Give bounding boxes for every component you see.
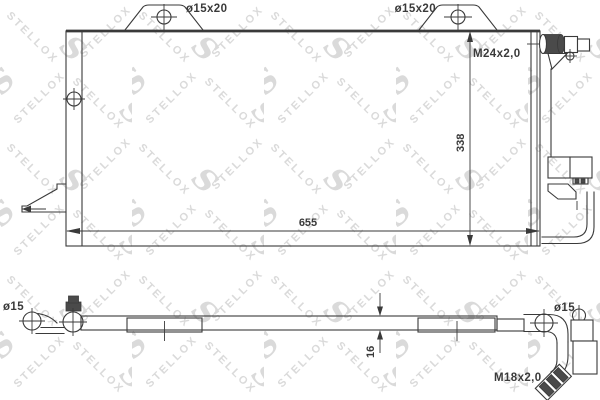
width-dimension-label: 655 [299,217,317,229]
watermark-background [0,0,600,400]
bracket-left-label: ø15x20 [186,3,227,15]
valve-block-lower [573,341,597,374]
thickness-dimension-label: 16 [365,346,377,358]
right-port-label: ø15 [554,302,575,314]
height-dimension-label: 338 [455,134,467,152]
left-port-label: ø15 [3,301,24,313]
fitting-size-label: M24x2,0 [473,48,521,60]
fitting-block [578,39,590,51]
technical-drawing: STELLOX STELLOX STELLOX STELLOX S S S [0,0,600,400]
valve-block-upper [571,320,593,341]
fitting-block [565,37,578,53]
bracket-right-label: ø15x20 [395,3,436,15]
outlet-fitting-label: M18x2,0 [494,372,542,384]
